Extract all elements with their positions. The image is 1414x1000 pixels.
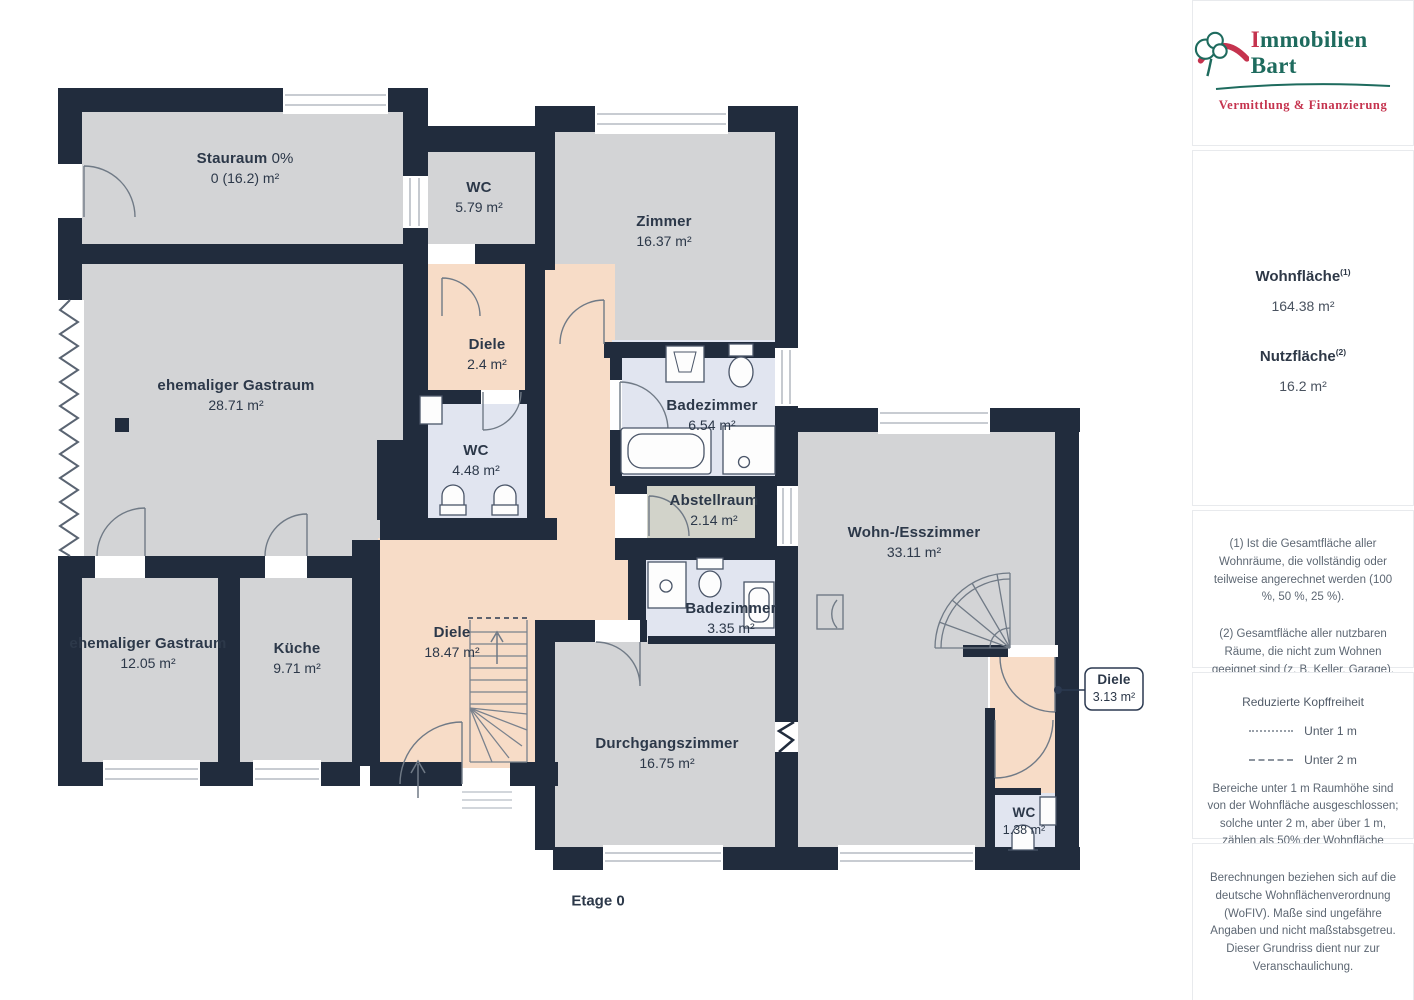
room-callout-diele-313: Diele 3.13 m²	[1093, 671, 1135, 705]
room-label-durchgangszimmer: Durchgangszimmer 16.75 m²	[595, 734, 738, 772]
room-label-stauraum: Stauraum 0% 0 (16.2) m²	[197, 148, 294, 188]
room-label-diele-24: Diele 2.4 m²	[467, 335, 507, 373]
room-label-badezimmer-654: Badezimmer 6.54 m²	[666, 396, 757, 434]
legend-card: Reduzierte Kopffreiheit Unter 1 m Unter …	[1192, 672, 1414, 839]
legend-title: Reduzierte Kopffreiheit	[1193, 695, 1413, 709]
logo-underline-swoosh	[1214, 81, 1392, 91]
dashed-line-icon	[1249, 759, 1293, 761]
floorplan-page: Stauraum 0% 0 (16.2) m² WC 5.79 m² Zimme…	[0, 0, 1414, 1000]
floor-label: Etage 0	[571, 893, 624, 910]
room-label-wohn-esszimmer: Wohn-/Esszimmer 33.11 m²	[848, 523, 981, 561]
wohnflaeche-value: 164.38 m²	[1193, 298, 1413, 314]
room-label-badezimmer-335: Badezimmer 3.35 m²	[685, 599, 776, 637]
logo-tree-roof-icon	[1193, 27, 1249, 79]
nutzflaeche-value: 16.2 m²	[1193, 378, 1413, 394]
footnote-1: (1) Ist die Gesamtfläche aller Wohnräume…	[1210, 536, 1396, 607]
room-label-gastraum-1205: ehemaliger Gastraum 12.05 m²	[69, 634, 226, 672]
room-label-abstellraum: Abstellraum 2.14 m²	[670, 491, 759, 529]
entry-steps	[462, 792, 512, 808]
wohnflaeche-label: Wohnfläche(1)	[1193, 267, 1413, 285]
disclaimer-text: Berechnungen beziehen sich auf die deuts…	[1208, 870, 1398, 977]
nutzflaeche-label: Nutzfläche(2)	[1193, 347, 1413, 365]
dotted-line-icon	[1249, 730, 1293, 732]
room-label-wc-579: WC 5.79 m²	[455, 178, 502, 216]
room-label-kueche: Küche 9.71 m²	[273, 639, 320, 677]
floor-plan-drawing	[0, 0, 1192, 1000]
room-label-gastraum-2871: ehemaliger Gastraum 28.71 m²	[157, 376, 314, 414]
area-summary-card: Wohnfläche(1) 164.38 m² Nutzfläche(2) 16…	[1192, 150, 1414, 506]
room-label-wc-138: WC 1.38 m²	[1003, 804, 1045, 838]
sidebar: Immobilien Bart Vermittlung & Finanzieru…	[1192, 0, 1414, 1000]
logo: Immobilien Bart	[1193, 27, 1413, 79]
logo-card: Immobilien Bart Vermittlung & Finanzieru…	[1192, 0, 1414, 146]
disclaimer-card: Berechnungen beziehen sich auf die deuts…	[1192, 843, 1414, 1000]
floor-plan: Stauraum 0% 0 (16.2) m² WC 5.79 m² Zimme…	[0, 0, 1192, 1000]
legend-description: Bereiche unter 1 m Raumhöhe sind von der…	[1205, 781, 1401, 850]
room-label-wc-448: WC 4.48 m²	[452, 441, 499, 479]
room-label-diele-1847: Diele 18.47 m²	[424, 623, 479, 661]
logo-title: Immobilien Bart	[1251, 27, 1413, 79]
footnotes-card: (1) Ist die Gesamtfläche aller Wohnräume…	[1192, 510, 1414, 668]
room-label-zimmer: Zimmer 16.37 m²	[636, 212, 691, 250]
legend-item-under-2m: Unter 2 m	[1193, 753, 1413, 767]
legend-item-under-1m: Unter 1 m	[1193, 724, 1413, 738]
logo-subtitle: Vermittlung & Finanzierung	[1219, 98, 1388, 113]
